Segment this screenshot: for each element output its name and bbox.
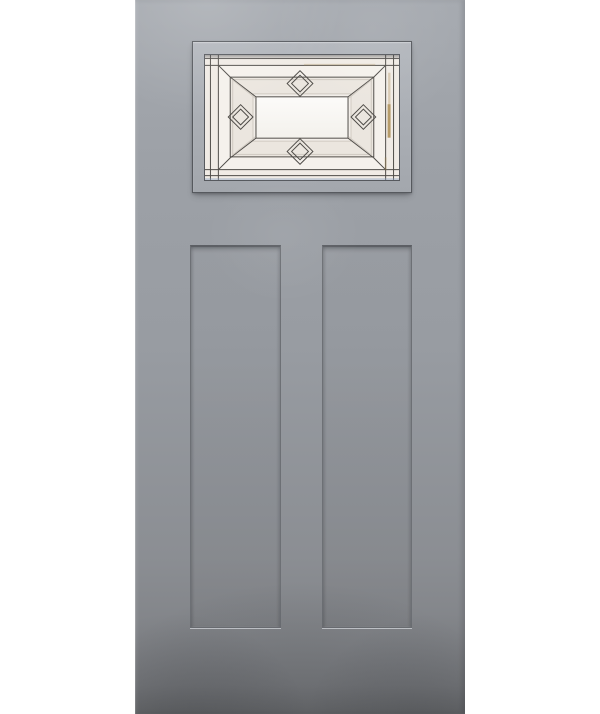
glass-pattern-svg [205, 55, 399, 180]
door-slab [135, 0, 465, 714]
glass-top-shadow [205, 55, 399, 60]
panel-right [322, 245, 412, 628]
glass-bottom-edge [205, 178, 399, 180]
glass-border-fills [205, 55, 399, 180]
panel-left [190, 245, 281, 628]
glass-lite [204, 54, 400, 181]
center-pane [256, 97, 348, 138]
glass-lite-frame [192, 41, 412, 193]
